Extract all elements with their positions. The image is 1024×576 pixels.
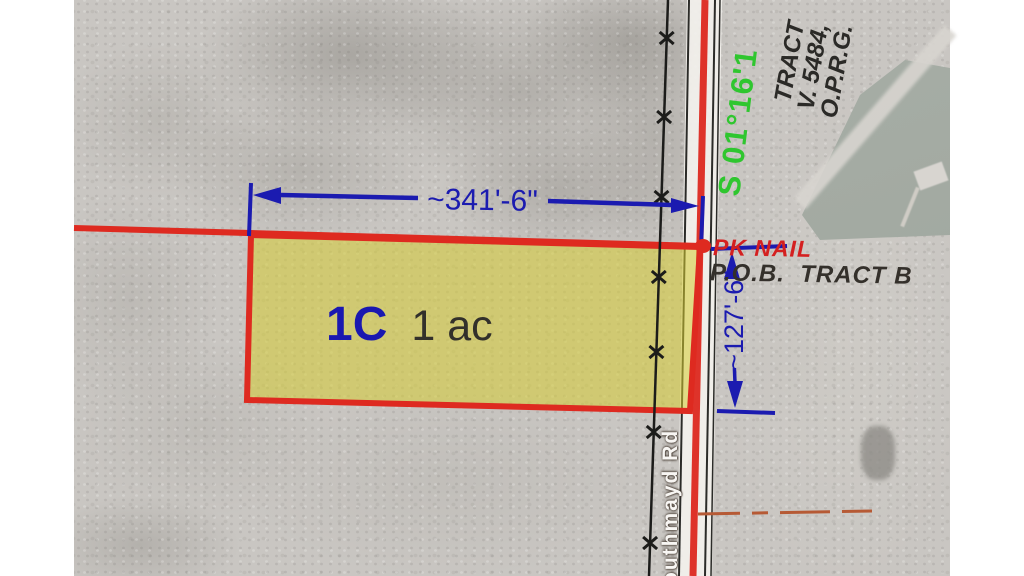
pob-tract-b-label: P.O.B. TRACT B: [710, 259, 913, 291]
frontage-dimension-label: ~341'-6": [415, 183, 551, 219]
parcel-id: 1C: [326, 297, 387, 352]
pk-nail-point: [695, 239, 711, 253]
road-name-label: Southmayd Rd: [659, 429, 683, 576]
parcel-label: 1C 1 ac: [326, 297, 493, 352]
dashed-boundary-line: [698, 511, 872, 514]
survey-plat-map: ~341'-6" ~127'-6" PK NAIL P.O.B. TRACT B…: [0, 0, 1024, 576]
parcel-area: 1 ac: [411, 302, 492, 351]
